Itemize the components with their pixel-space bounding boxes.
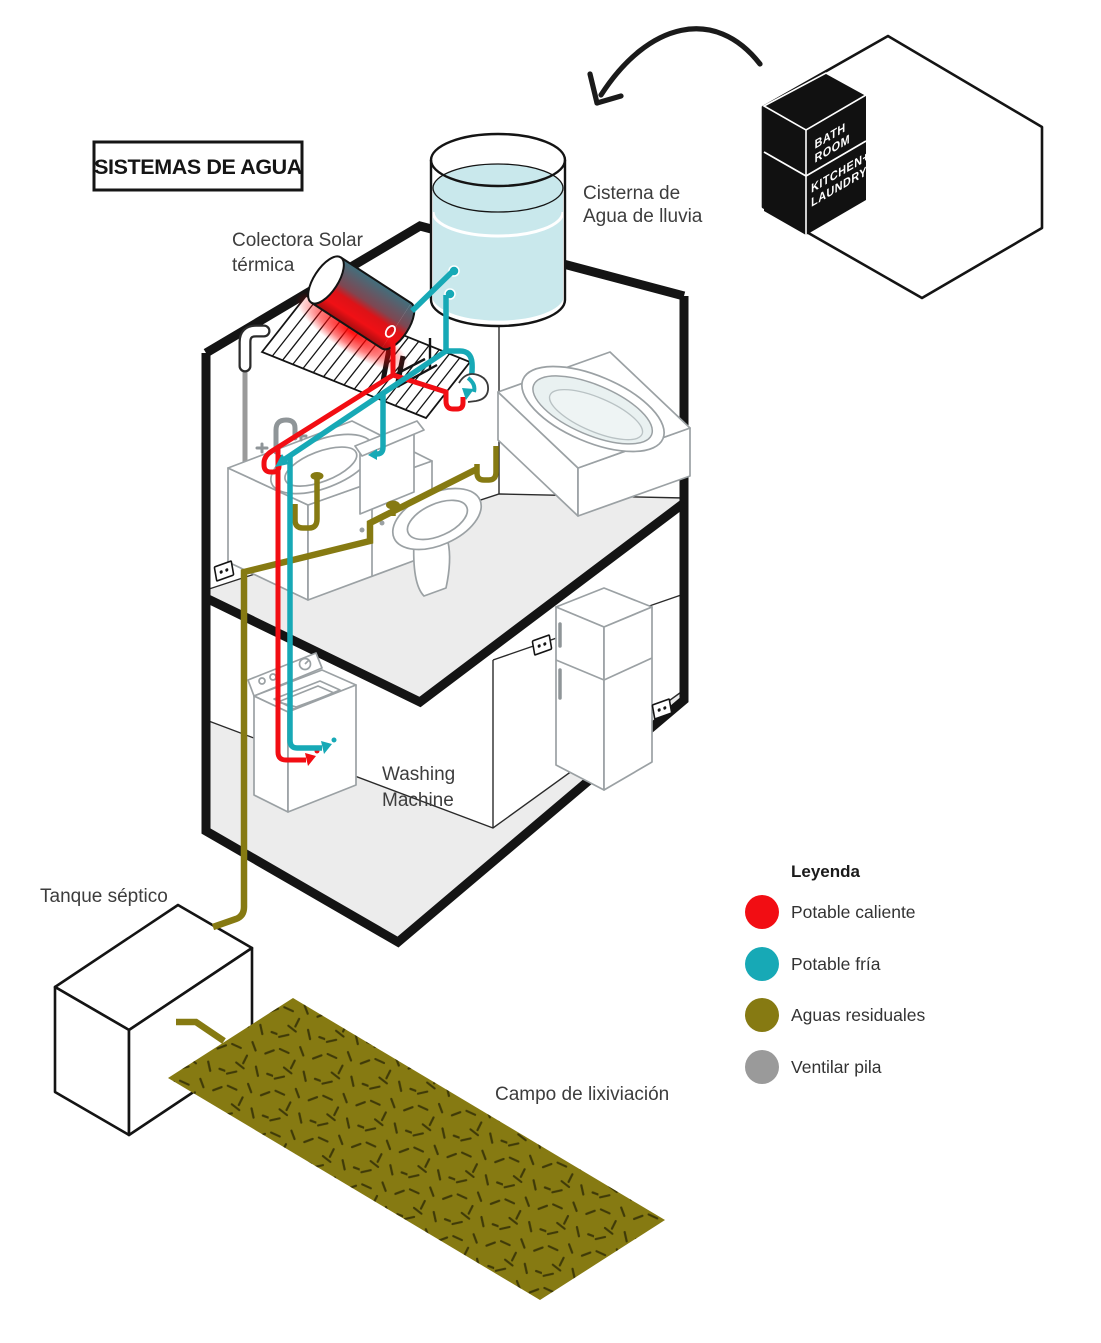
label-cistern-2: Agua de lluvia	[583, 206, 703, 227]
title-box: SISTEMAS DE AGUA	[94, 142, 302, 190]
page-title: SISTEMAS DE AGUA	[94, 155, 302, 179]
leach-field	[168, 998, 665, 1300]
label-solar: Colectora Solar	[232, 230, 364, 251]
pointer-arrow	[590, 29, 760, 103]
legend-label-hot: Potable caliente	[791, 902, 916, 922]
label-solar-2: térmica	[232, 255, 295, 276]
legend-swatch-vent	[745, 1050, 779, 1084]
legend-label-waste: Aguas residuales	[791, 1005, 925, 1025]
refrigerator	[556, 588, 652, 790]
legend-label-cold: Potable fría	[791, 954, 881, 974]
legend-swatch-hot	[745, 895, 779, 929]
label-septic: Tanque séptico	[40, 886, 168, 907]
label-leach: Campo de lixiviación	[495, 1084, 669, 1105]
water-systems-diagram: BATH ROOM KITCHEN+ LAUNDRY SISTEMAS DE A…	[0, 0, 1101, 1343]
label-washing: Washing	[382, 764, 455, 785]
legend-swatch-waste	[745, 998, 779, 1032]
legend-label-vent: Ventilar pila	[791, 1057, 882, 1077]
legend-heading: Leyenda	[791, 862, 861, 881]
legend-swatch-cold	[745, 947, 779, 981]
rain-cistern	[431, 134, 565, 326]
label-washing-2: Machine	[382, 790, 454, 811]
legend: Leyenda Potable caliente Potable fría Ag…	[745, 862, 925, 1084]
label-cistern: Cisterna de	[583, 183, 680, 204]
